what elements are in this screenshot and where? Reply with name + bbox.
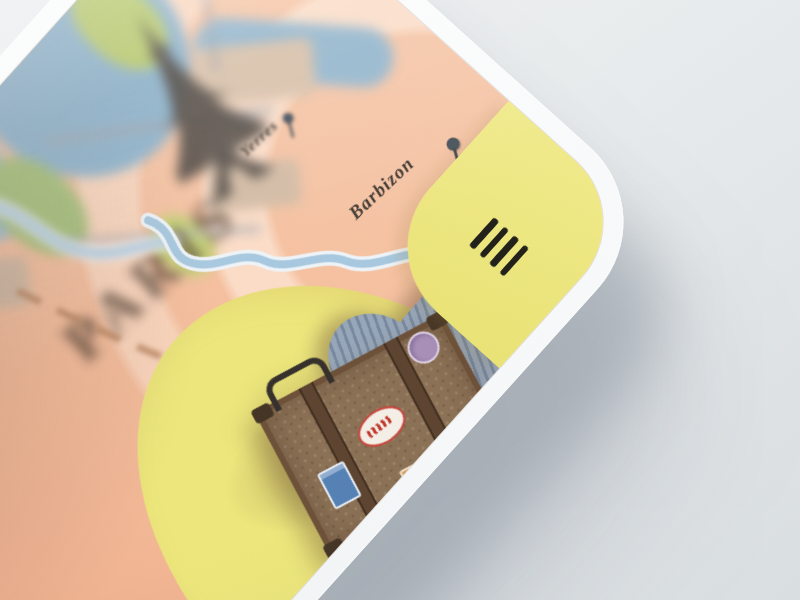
travel-map[interactable]: PARIS: [0, 0, 636, 600]
app-screen: PARIS: [0, 0, 636, 600]
trunk-strap: [298, 382, 388, 533]
phone-mockup: PARIS: [0, 0, 665, 600]
trunk-sticker-red-oval: [351, 398, 413, 455]
trunk-corner: [497, 444, 522, 467]
menu-button[interactable]: [463, 211, 535, 282]
scene-background: PARIS: [0, 0, 800, 600]
trunk-sticker-orange: [399, 454, 448, 500]
